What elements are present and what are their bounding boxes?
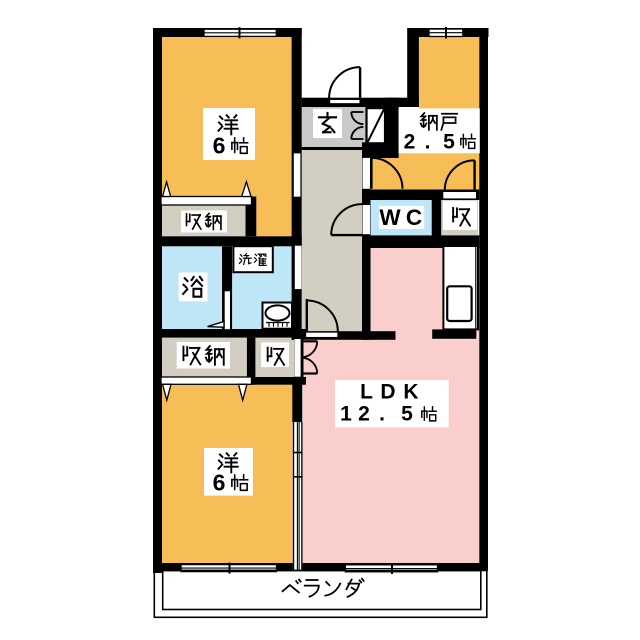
svg-text:C: C (406, 205, 422, 230)
svg-text:6: 6 (213, 470, 226, 496)
svg-text:L: L (360, 381, 373, 404)
svg-text:D: D (380, 381, 395, 404)
svg-text:.: . (425, 131, 431, 154)
svg-text:.: . (379, 403, 385, 426)
svg-text:K: K (403, 381, 418, 404)
svg-text:5: 5 (401, 403, 413, 426)
svg-text:2: 2 (404, 131, 416, 154)
svg-text:6: 6 (213, 133, 226, 159)
svg-text:2: 2 (358, 403, 370, 426)
svg-text:5: 5 (443, 131, 455, 154)
svg-text:W: W (379, 205, 401, 230)
svg-text:1: 1 (340, 403, 352, 426)
